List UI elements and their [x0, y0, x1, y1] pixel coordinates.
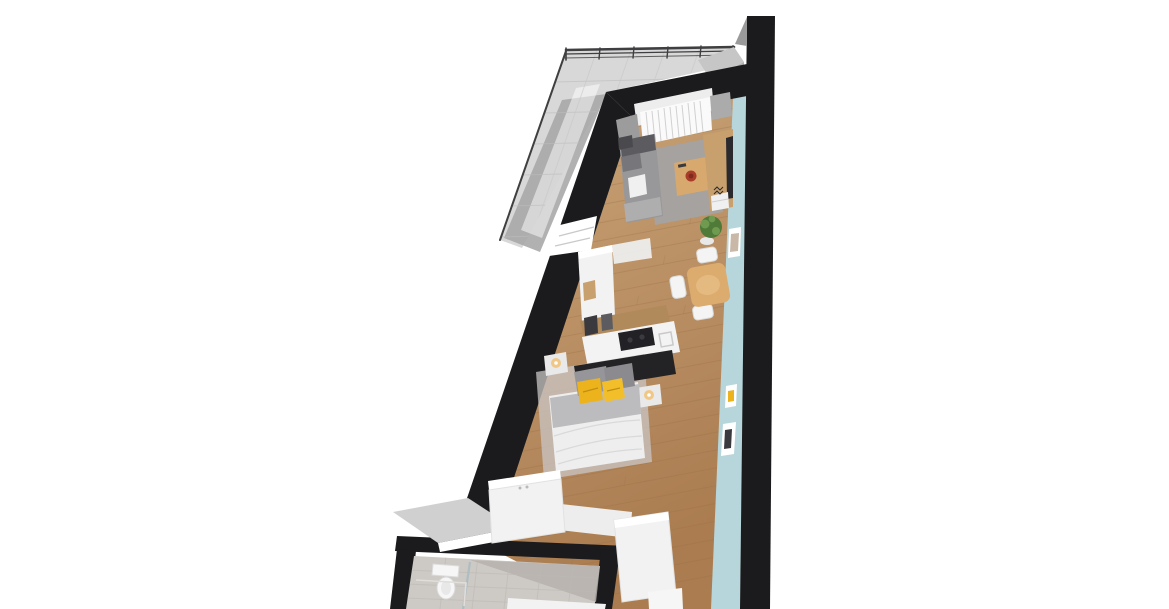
lamp-icon [647, 393, 651, 397]
floor-plan-canvas: Top-down 3D architectural render of a na… [0, 0, 1169, 609]
bed-pillow-yellow [577, 378, 603, 404]
lamp-icon [554, 361, 558, 365]
red-bowl-inner [689, 174, 694, 179]
tv-screen-icon [726, 136, 733, 199]
cabinet-wood-inset [583, 280, 596, 301]
sofa-white-pillow [628, 174, 647, 198]
wardrobe-box [489, 479, 565, 543]
appliance-icon [601, 313, 613, 331]
handle-icon [519, 487, 522, 490]
burner-icon [639, 334, 644, 339]
picture-frame-photo [724, 429, 732, 449]
dining-chair [696, 246, 718, 263]
appliance-icon [584, 315, 598, 336]
burner-icon [627, 337, 632, 342]
picture-frame-photo [728, 390, 734, 402]
apartment-3d-floor-plan [0, 0, 1169, 609]
handle-icon [526, 486, 529, 489]
picture-frame-photo [730, 233, 739, 252]
window-side-wall-right [710, 92, 732, 120]
